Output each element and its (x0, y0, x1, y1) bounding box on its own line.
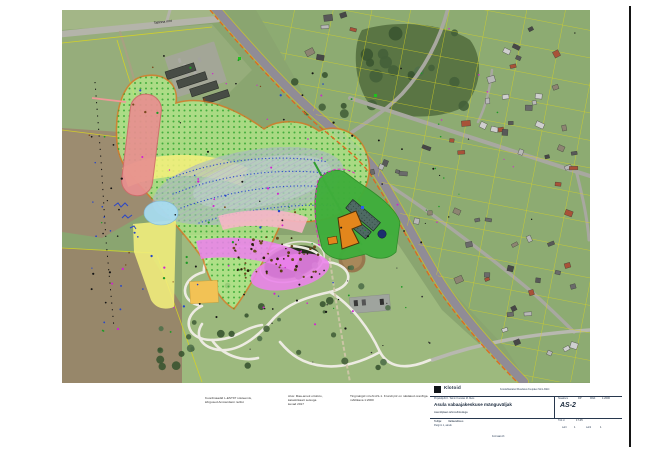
house (535, 278, 540, 283)
survey-dot (281, 224, 283, 226)
survey-dot (261, 240, 263, 242)
survey-dot (225, 195, 227, 197)
survey-dot (280, 264, 282, 266)
note-legend-ref: Tingmärgid vt leht AS-1. Krundi piir on … (350, 394, 428, 402)
survey-dot (120, 285, 122, 287)
survey-dot (306, 302, 308, 304)
survey-dot (277, 193, 279, 195)
sheet-frame-line (629, 6, 631, 447)
tree (320, 301, 326, 307)
survey-dot (278, 266, 280, 268)
survey-dot (400, 68, 402, 70)
survey-dot (194, 175, 196, 177)
tree (192, 320, 197, 325)
survey-dot (291, 258, 294, 261)
survey-dot (285, 248, 286, 249)
survey-dot (296, 300, 298, 302)
survey-dot (283, 119, 285, 121)
drawing-sheet: Tallinna mnt Koordinaadid L-EST97 süstee… (0, 0, 650, 459)
tree (156, 356, 164, 364)
house (399, 171, 408, 176)
survey-dot (290, 123, 291, 124)
survey-dot (443, 177, 445, 179)
worknr-value: 17-05 (576, 419, 583, 422)
survey-dot (103, 322, 105, 324)
survey-dot (364, 230, 365, 231)
sheet-label: Leht (562, 426, 567, 429)
survey-dot (435, 168, 437, 170)
survey-dot (382, 345, 383, 346)
tree (159, 363, 166, 370)
survey-dot (428, 342, 429, 343)
survey-dot (421, 72, 423, 74)
survey-dot (458, 194, 459, 195)
survey-dot (513, 166, 514, 167)
house (502, 94, 509, 99)
house (449, 138, 454, 142)
survey-dot (208, 221, 210, 223)
house (569, 166, 578, 170)
survey-dot (294, 268, 297, 271)
survey-dot (173, 307, 174, 308)
survey-dot (280, 270, 283, 273)
survey-dot (332, 122, 334, 124)
stage-value: DP (578, 397, 582, 400)
scale-label: Mõõt (590, 397, 595, 400)
survey-dot (270, 167, 272, 169)
survey-dot (264, 308, 265, 309)
survey-dot (322, 83, 324, 85)
company-logo (434, 386, 441, 393)
survey-dot (226, 83, 227, 84)
survey-dot (183, 305, 185, 307)
survey-dot (267, 119, 268, 120)
survey-dot (448, 28, 449, 29)
survey-dot (139, 89, 141, 91)
sheet-code: AS-2 (560, 402, 576, 409)
tree (159, 326, 164, 331)
house (524, 312, 532, 316)
scale-value: 1:2000 (602, 397, 610, 400)
survey-dot (142, 288, 144, 290)
survey-dot (256, 85, 257, 86)
note-coordinates: Koordinaadid L-EST97 süsteemis, kõrgused… (205, 396, 252, 404)
zone-orange-patch (189, 280, 218, 303)
survey-dot (91, 288, 93, 290)
survey-dot (232, 241, 234, 243)
survey-dot (352, 310, 354, 312)
survey-dot (180, 122, 181, 123)
survey-dot (317, 253, 320, 256)
survey-dot (287, 255, 289, 257)
survey-dot (212, 73, 213, 74)
survey-dot (89, 134, 91, 136)
survey-dot (113, 144, 115, 146)
tree (178, 351, 184, 357)
survey-dot (243, 294, 245, 296)
survey-dot (323, 270, 325, 272)
house (571, 151, 577, 155)
drawing-name: Asendiplaan tehnovõrkudega (434, 411, 468, 414)
company-name: Klotoid (444, 385, 461, 390)
survey-dot (294, 211, 296, 213)
survey-dot (438, 206, 440, 208)
note-basemap: Alus: Maa-ameti ortofoto, katastrikaart … (288, 394, 323, 407)
survey-dot (275, 263, 277, 265)
survey-dot (228, 265, 230, 267)
survey-dot (224, 206, 226, 208)
survey-dot (101, 222, 102, 223)
survey-dot (144, 111, 146, 113)
survey-dot (266, 271, 268, 273)
survey-dot (281, 243, 283, 245)
survey-dot (104, 136, 106, 138)
approvals-row: Kooskõlastatud Muudatus Kuupäev Nimi All… (500, 388, 549, 391)
tree (326, 297, 334, 305)
survey-dot (238, 239, 239, 240)
sheets-value: 1 (600, 426, 601, 429)
survey-dot (321, 157, 323, 159)
survey-dot (102, 233, 104, 235)
survey-dot (95, 235, 97, 237)
survey-dot (303, 253, 305, 255)
survey-dot (302, 208, 304, 210)
survey-dot (283, 258, 285, 260)
survey-dot (432, 168, 434, 170)
survey-dot (203, 98, 205, 100)
survey-dot (111, 283, 113, 285)
survey-dot (235, 83, 237, 85)
survey-dot (103, 330, 105, 332)
survey-dot (173, 281, 174, 282)
survey-dot (278, 295, 279, 296)
survey-dot (441, 119, 442, 120)
survey-dot (307, 253, 308, 254)
site-pond-circle (378, 230, 386, 238)
survey-dot (253, 250, 256, 253)
survey-dot (189, 67, 191, 69)
title-block: Klotoid Kooskõlastatud Muudatus Kuupäev … (430, 383, 622, 447)
survey-dot (101, 206, 103, 208)
survey-dot (340, 227, 342, 229)
survey-dot (439, 175, 440, 176)
survey-dot (247, 269, 250, 272)
survey-dot (313, 246, 316, 249)
survey-dot (378, 139, 380, 141)
authors-row: Projektijuht K. Tamm Koostas M. Mets (434, 397, 474, 400)
survey-dot (109, 271, 111, 273)
survey-dot (244, 262, 246, 264)
survey-dot (267, 253, 269, 255)
survey-dot (326, 304, 327, 305)
survey-dot (425, 223, 426, 224)
survey-dot (318, 244, 320, 246)
survey-dot (403, 230, 405, 232)
survey-dot (235, 243, 237, 245)
tree (341, 358, 348, 365)
survey-dot (117, 328, 119, 330)
survey-dot (244, 267, 246, 269)
tree (277, 318, 281, 322)
survey-dot (263, 257, 266, 260)
survey-dot (285, 267, 286, 268)
tree (385, 305, 390, 310)
tree (186, 334, 191, 339)
house (555, 182, 561, 186)
aerial-map: Tallinna mnt (62, 10, 590, 383)
survey-dot (273, 293, 275, 295)
survey-dot (241, 181, 243, 183)
tree (263, 325, 270, 332)
survey-dot (401, 286, 403, 288)
survey-dot (170, 331, 172, 333)
client-address: Pargi tn 1, alevik (434, 424, 452, 427)
survey-dot (197, 178, 199, 180)
survey-dot (110, 187, 112, 189)
sheets-label: Lehti (586, 426, 591, 429)
survey-dot (367, 235, 369, 237)
survey-dot (186, 262, 188, 264)
survey-dot (276, 237, 279, 240)
survey-dot (238, 59, 240, 61)
survey-dot (244, 272, 246, 274)
survey-dot (105, 302, 107, 304)
survey-dot (163, 55, 165, 57)
survey-dot (94, 162, 96, 164)
stage-label: Staadium (558, 397, 568, 400)
survey-dot (122, 268, 124, 270)
survey-dot (110, 230, 112, 232)
house (413, 218, 419, 225)
survey-dot (186, 256, 188, 258)
survey-dot (250, 349, 251, 350)
survey-dot (291, 245, 294, 248)
survey-dot (118, 209, 120, 211)
survey-dot (251, 243, 254, 246)
survey-dot (119, 308, 121, 310)
survey-dot (386, 303, 387, 304)
survey-dot (295, 265, 298, 268)
tree (187, 345, 195, 353)
survey-dot (303, 276, 305, 278)
survey-dot (237, 269, 239, 271)
house (561, 125, 566, 131)
tree (172, 361, 181, 370)
survey-dot (397, 204, 399, 206)
survey-dot (272, 308, 274, 310)
house (323, 14, 332, 21)
survey-dot (92, 273, 94, 275)
house (502, 129, 508, 135)
survey-dot (405, 307, 406, 308)
survey-dot (270, 259, 273, 262)
sheet-value: 1 (574, 426, 575, 429)
survey-dot (531, 219, 532, 220)
survey-dot (280, 94, 282, 96)
survey-dot (276, 257, 279, 260)
survey-dot (250, 248, 252, 250)
house (525, 105, 532, 111)
survey-dot (421, 296, 423, 298)
house (321, 25, 329, 29)
format-note: Formaat A3 (492, 435, 504, 438)
house (507, 312, 514, 317)
tree (331, 332, 336, 337)
survey-dot (117, 235, 119, 237)
tree (358, 283, 364, 289)
survey-dot (152, 66, 154, 68)
survey-dot (195, 266, 197, 268)
house (485, 98, 490, 104)
tree (349, 265, 354, 270)
tree (244, 313, 248, 317)
house (532, 100, 537, 105)
survey-dot (156, 112, 158, 114)
tree (380, 359, 387, 366)
tree (375, 365, 380, 370)
survey-dot (128, 252, 130, 254)
survey-dot (332, 282, 334, 284)
survey-dot (436, 222, 437, 223)
survey-dot (333, 308, 334, 309)
survey-dot (197, 284, 199, 286)
survey-dot (325, 311, 327, 313)
survey-dot (298, 284, 300, 286)
survey-dot (197, 180, 199, 182)
survey-dot (132, 104, 134, 106)
survey-dot (163, 277, 165, 279)
survey-dot (288, 207, 289, 208)
survey-dot (312, 362, 313, 363)
survey-dot (245, 277, 247, 279)
house (535, 93, 542, 99)
survey-dot (426, 210, 427, 211)
tree (257, 336, 262, 341)
survey-dot (371, 352, 372, 353)
survey-dot (338, 299, 339, 300)
survey-dot (487, 91, 488, 92)
survey-dot (319, 273, 321, 275)
survey-dot (312, 72, 314, 74)
survey-dot (134, 232, 136, 234)
house (428, 211, 433, 215)
survey-dot (174, 214, 176, 216)
survey-dot (309, 247, 312, 250)
survey-dot (302, 94, 304, 96)
survey-dot (259, 226, 261, 228)
survey-dot (438, 123, 440, 125)
survey-dot (271, 323, 272, 324)
house (458, 150, 465, 154)
survey-dot (497, 112, 499, 114)
survey-dot (401, 148, 403, 150)
survey-dot (381, 183, 383, 185)
survey-dot (420, 241, 422, 243)
survey-dot (121, 177, 123, 179)
survey-dot (311, 243, 312, 244)
survey-dot (312, 271, 314, 273)
survey-dot (233, 247, 236, 250)
survey-dot (320, 95, 322, 97)
survey-dot (299, 250, 301, 252)
survey-dot (259, 201, 260, 202)
survey-dot (235, 250, 237, 252)
survey-dot (213, 198, 215, 200)
survey-dot (163, 266, 165, 268)
house (316, 54, 324, 61)
survey-dot (215, 316, 217, 318)
survey-dot (503, 159, 504, 160)
survey-dot (278, 210, 280, 212)
survey-dot (314, 323, 316, 325)
client-value: Vallavalitsus (448, 419, 463, 423)
zone-cyan (144, 201, 178, 225)
survey-dot (107, 200, 108, 201)
survey-dot (351, 135, 353, 137)
survey-dot (260, 86, 261, 87)
survey-dot (252, 238, 255, 241)
survey-dot (265, 236, 267, 238)
survey-dot (351, 98, 353, 100)
worknr-label: Töö nr (558, 419, 565, 422)
survey-dot (344, 327, 346, 329)
survey-dot (141, 156, 143, 158)
survey-dot (287, 251, 290, 254)
tree (217, 330, 225, 338)
survey-dot (348, 294, 350, 296)
survey-dot (478, 74, 480, 76)
survey-dot (207, 151, 209, 153)
survey-dot (468, 138, 469, 139)
survey-dot (267, 187, 269, 189)
survey-dot (103, 216, 105, 218)
survey-dot (255, 271, 257, 273)
survey-dot (314, 270, 316, 272)
survey-dot (91, 267, 92, 268)
survey-dot (92, 201, 93, 202)
survey-dot (574, 32, 575, 33)
parking-lot (349, 294, 390, 313)
house (508, 121, 513, 124)
house (465, 241, 473, 247)
survey-dot (212, 205, 214, 207)
survey-dot (237, 256, 239, 258)
project-name: Asula vabaajakeskuse mänguväljak (434, 402, 512, 407)
survey-dot (448, 216, 449, 217)
survey-dot (291, 237, 293, 239)
survey-dot (263, 306, 265, 308)
survey-dot (240, 268, 242, 270)
survey-dot (137, 236, 139, 238)
survey-dot (91, 136, 93, 138)
survey-dot (440, 136, 442, 138)
tree (158, 348, 162, 352)
tree (228, 331, 234, 337)
survey-dot (298, 252, 300, 254)
survey-dot (347, 280, 348, 281)
tree (245, 362, 251, 368)
survey-dot (169, 169, 170, 170)
survey-dot (307, 138, 309, 140)
house (461, 120, 470, 126)
survey-dot (199, 303, 201, 305)
survey-dot (299, 258, 302, 261)
tree (296, 350, 301, 355)
survey-dot (281, 219, 283, 221)
client-label: Tellija: (434, 419, 442, 423)
house (484, 272, 490, 277)
survey-dot (150, 255, 152, 257)
